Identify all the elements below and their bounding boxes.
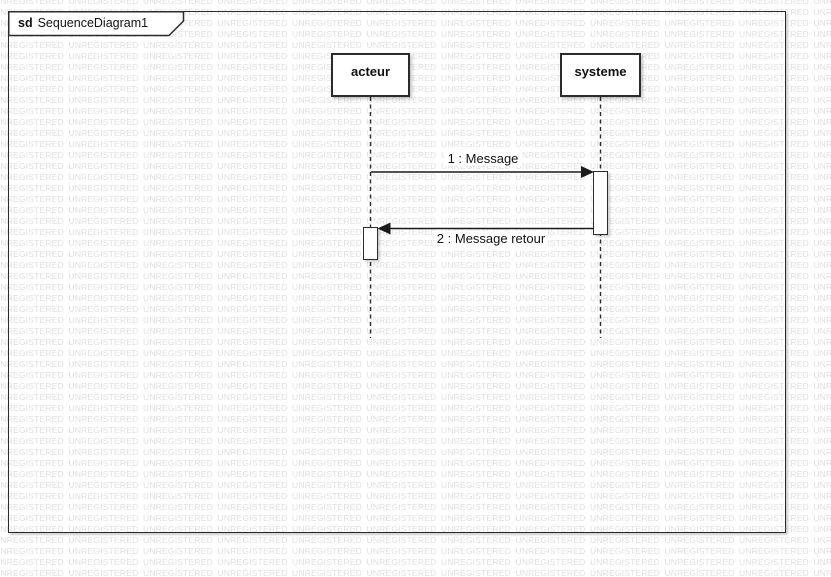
- message-1-label[interactable]: 1 : Message: [445, 151, 522, 166]
- diagram-canvas: UNREGISTERED UNREGISTERED UNREGISTERED U…: [0, 0, 831, 577]
- lifeline-head-acteur[interactable]: acteur: [331, 53, 410, 97]
- watermark-row: UNREGISTERED UNREGISTERED UNREGISTERED U…: [0, 546, 831, 557]
- activation-bar-systeme[interactable]: [593, 171, 608, 235]
- lifeline-acteur-label: acteur: [351, 64, 390, 79]
- activation-bar-acteur[interactable]: [363, 227, 378, 260]
- lifeline-head-systeme[interactable]: systeme: [560, 53, 641, 97]
- frame-name: SequenceDiagram1: [38, 16, 149, 30]
- watermark-row: UNREGISTERED UNREGISTERED UNREGISTERED U…: [0, 0, 831, 7]
- message-2-label[interactable]: 2 : Message retour: [434, 231, 548, 246]
- frame-keyword: sd: [18, 16, 33, 30]
- lifeline-systeme-label: systeme: [574, 64, 626, 79]
- watermark-row: UNREGISTERED UNREGISTERED UNREGISTERED U…: [0, 557, 831, 568]
- watermark-row: UNREGISTERED UNREGISTERED UNREGISTERED U…: [0, 535, 831, 546]
- watermark-row: UNREGISTERED UNREGISTERED UNREGISTERED U…: [0, 568, 831, 577]
- frame-tab-label: sdSequenceDiagram1: [8, 11, 188, 35]
